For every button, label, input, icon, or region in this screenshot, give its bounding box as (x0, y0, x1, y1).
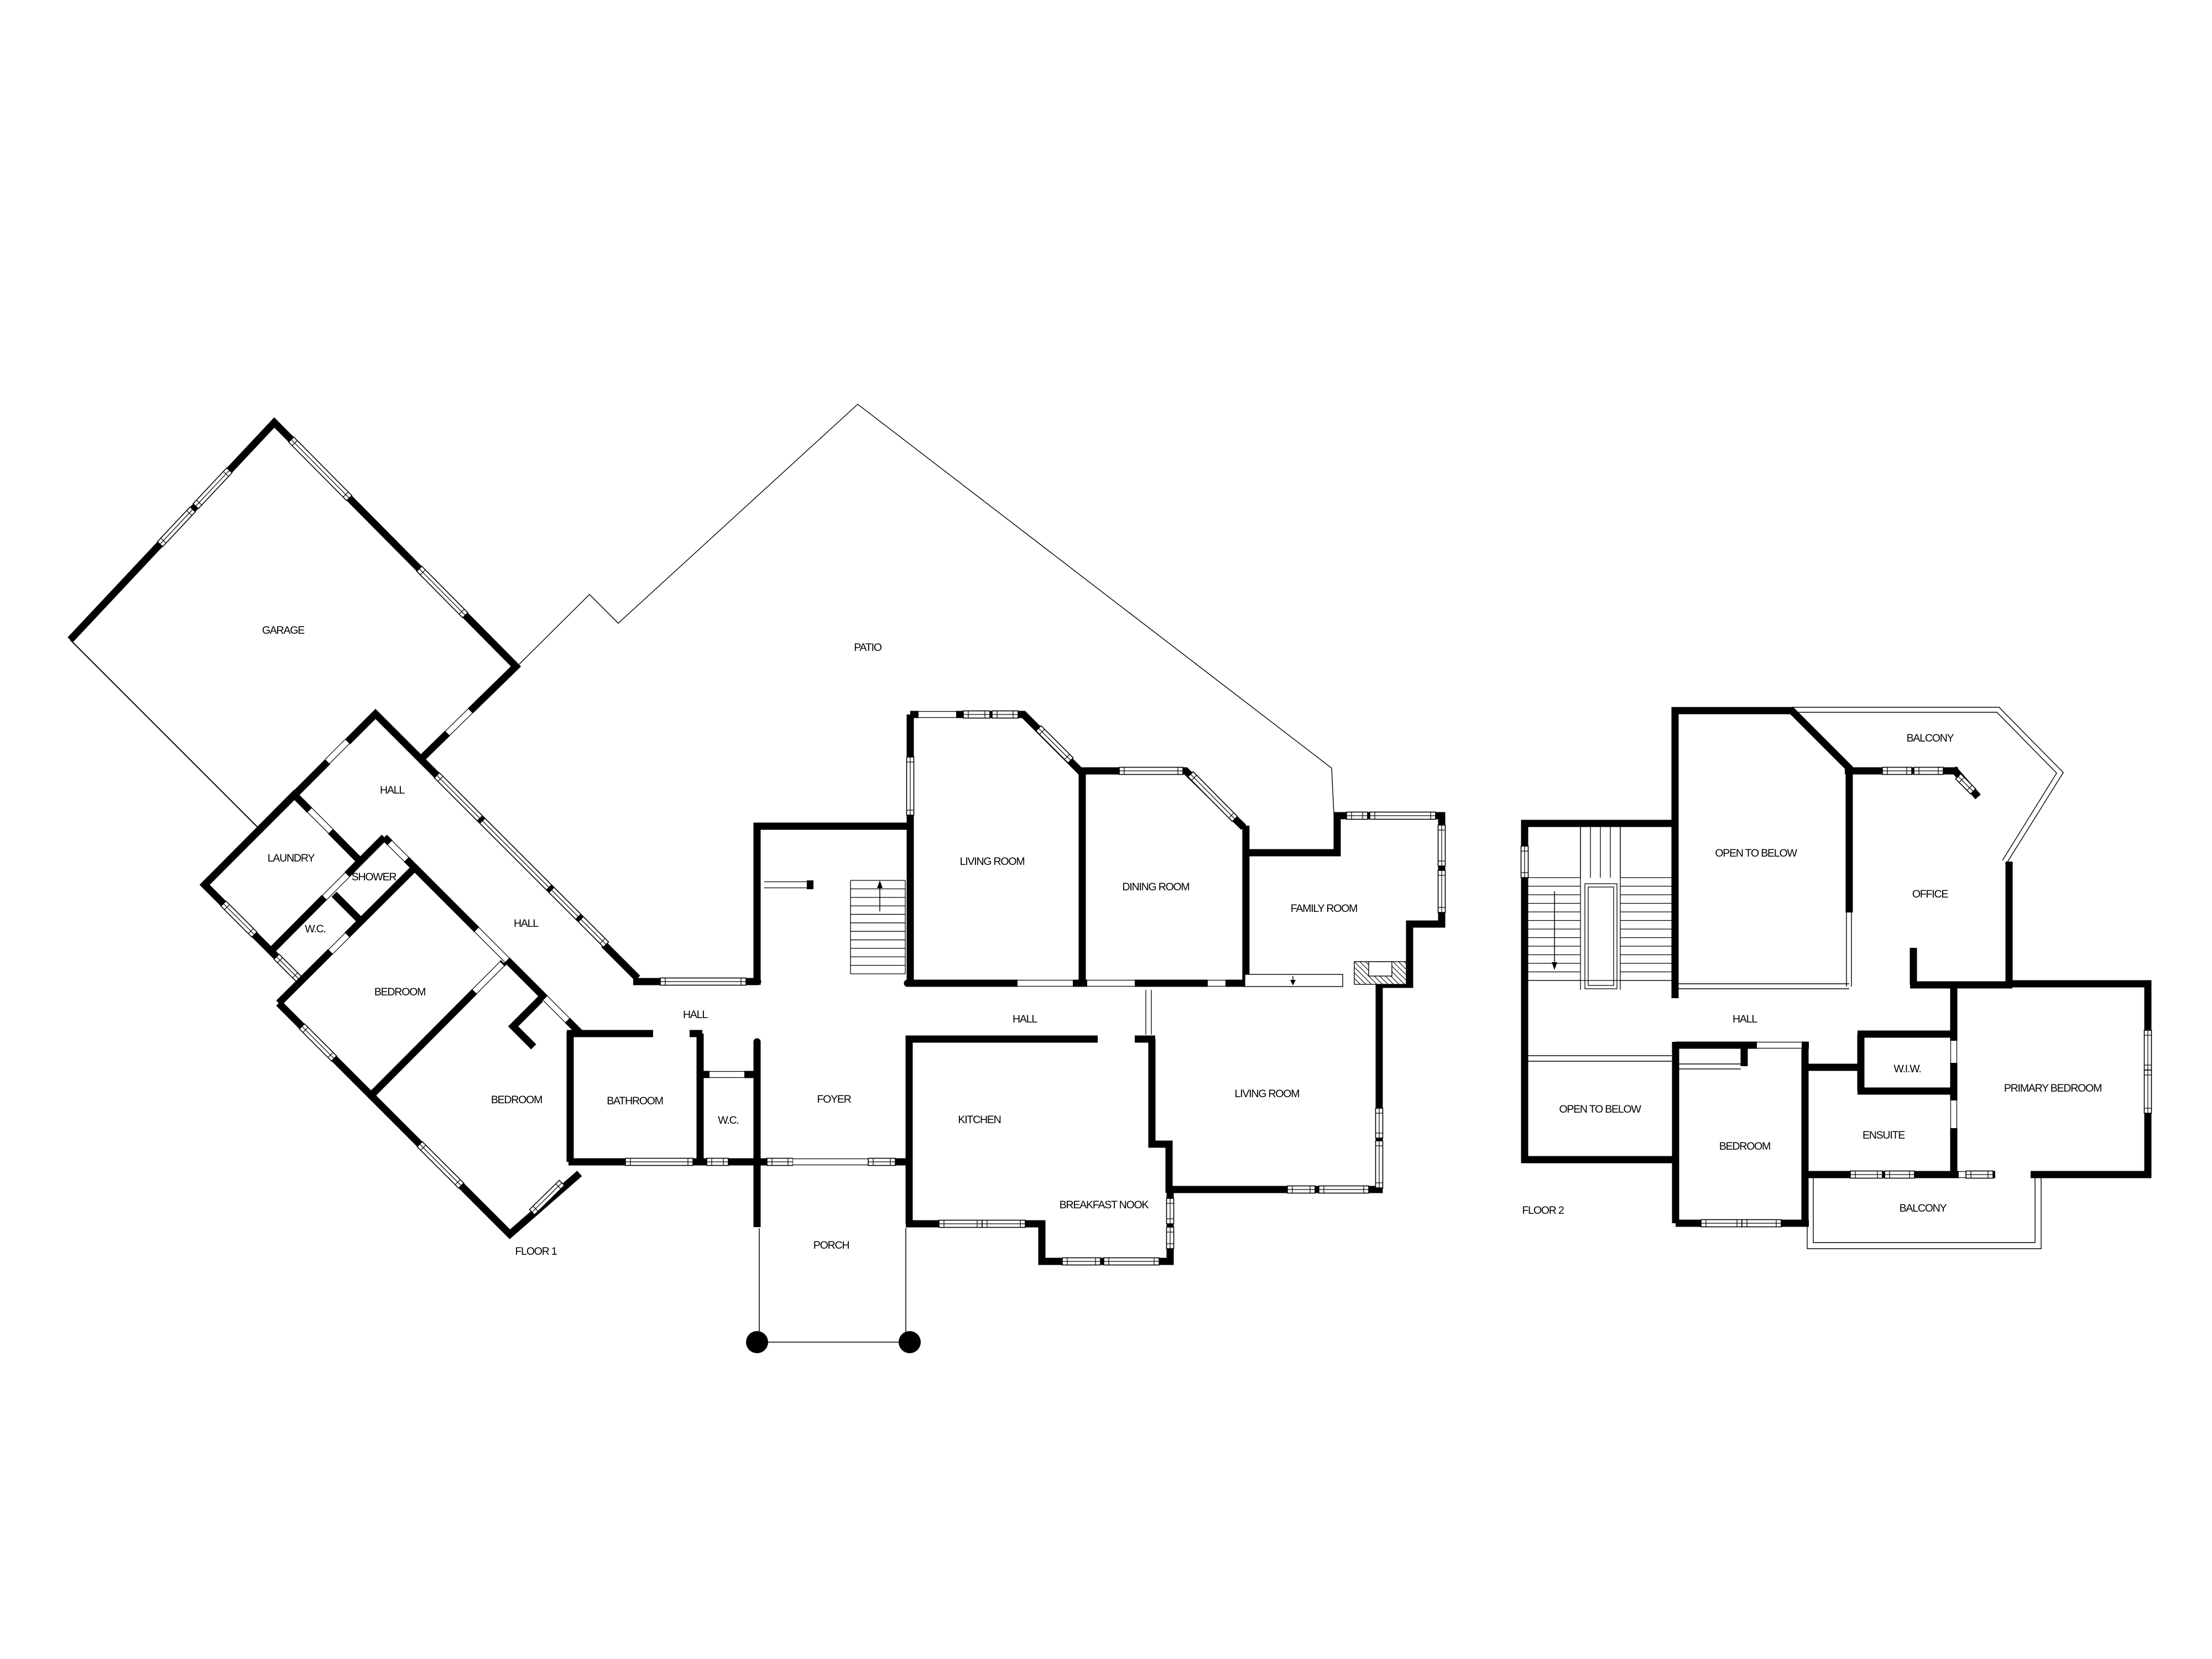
svg-text:FAMILY ROOM: FAMILY ROOM (1291, 902, 1357, 915)
svg-text:GARAGE: GARAGE (262, 624, 305, 637)
svg-text:OPEN TO BELOW: OPEN TO BELOW (1559, 1103, 1641, 1115)
svg-text:PRIMARY BEDROOM: PRIMARY BEDROOM (2004, 1082, 2101, 1094)
svg-text:LAUNDRY: LAUNDRY (268, 852, 315, 864)
svg-text:PATIO: PATIO (854, 641, 882, 654)
svg-text:KITCHEN: KITCHEN (958, 1114, 1000, 1126)
svg-text:BREAKFAST NOOK: BREAKFAST NOOK (1060, 1199, 1149, 1211)
svg-text:OPEN TO BELOW: OPEN TO BELOW (1715, 847, 1797, 859)
svg-text:BEDROOM: BEDROOM (491, 1094, 542, 1106)
svg-text:LIVING ROOM: LIVING ROOM (1235, 1088, 1300, 1100)
svg-text:FLOOR 1: FLOOR 1 (515, 1245, 556, 1258)
svg-text:W.C.: W.C. (305, 923, 325, 935)
svg-text:BEDROOM: BEDROOM (374, 986, 425, 998)
svg-text:W.C.: W.C. (718, 1114, 738, 1126)
svg-text:BEDROOM: BEDROOM (1719, 1140, 1770, 1152)
svg-text:OFFICE: OFFICE (1912, 888, 1948, 900)
svg-text:BALCONY: BALCONY (1907, 732, 1954, 744)
svg-text:HALL: HALL (1733, 1013, 1757, 1025)
svg-text:SHOWER: SHOWER (352, 871, 397, 883)
svg-text:BATHROOM: BATHROOM (607, 1095, 663, 1107)
svg-text:HALL: HALL (1013, 1013, 1037, 1025)
svg-text:DINING ROOM: DINING ROOM (1122, 881, 1189, 893)
svg-text:LIVING ROOM: LIVING ROOM (960, 855, 1025, 868)
svg-text:HALL: HALL (514, 917, 539, 930)
svg-text:HALL: HALL (683, 1009, 708, 1021)
svg-text:HALL: HALL (380, 784, 405, 796)
svg-text:ENSUITE: ENSUITE (1863, 1129, 1905, 1141)
svg-text:PORCH: PORCH (813, 1239, 849, 1251)
svg-text:FOYER: FOYER (817, 1093, 851, 1105)
svg-text:BALCONY: BALCONY (1900, 1202, 1947, 1214)
svg-text:W.I.W.: W.I.W. (1893, 1063, 1921, 1075)
svg-text:FLOOR 2: FLOOR 2 (1522, 1204, 1563, 1217)
